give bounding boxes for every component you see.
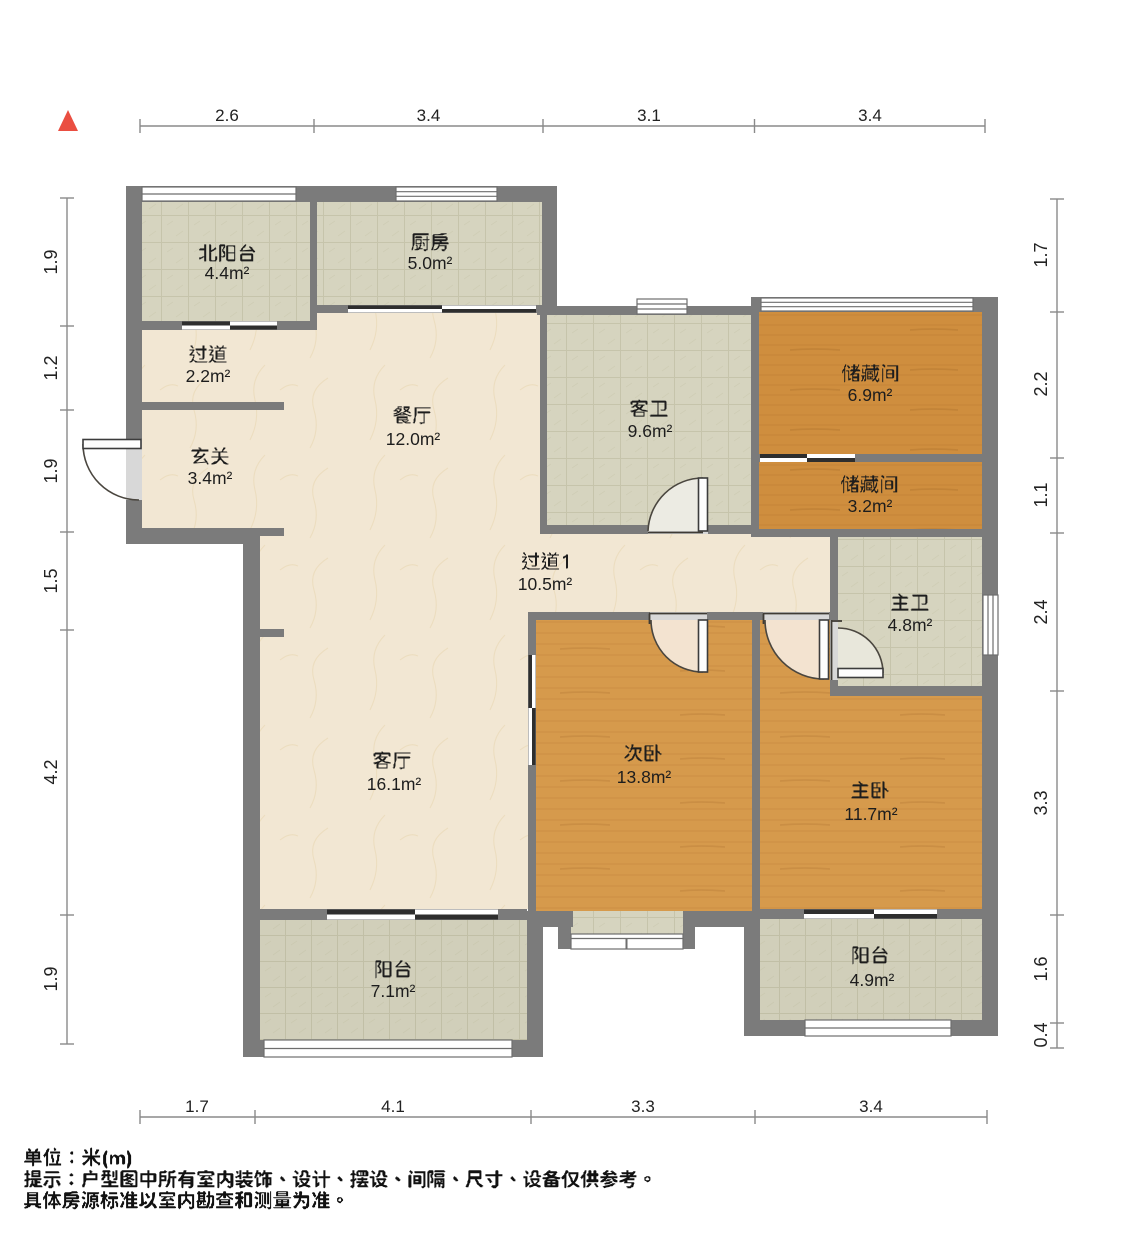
- svg-text:2.2m²: 2.2m²: [186, 366, 231, 386]
- svg-text:16.1m²: 16.1m²: [367, 774, 422, 794]
- svg-text:1.9: 1.9: [41, 249, 61, 274]
- svg-text:13.8m²: 13.8m²: [617, 767, 672, 787]
- svg-text:4.2: 4.2: [41, 759, 61, 784]
- svg-text:3.4: 3.4: [417, 106, 441, 125]
- svg-text:3.1: 3.1: [637, 106, 661, 125]
- svg-text:1.1: 1.1: [1031, 482, 1051, 507]
- svg-text:4.1: 4.1: [381, 1097, 405, 1116]
- svg-text:3.3: 3.3: [631, 1097, 655, 1116]
- svg-text:1.5: 1.5: [41, 568, 61, 593]
- svg-text:4.9m²: 4.9m²: [850, 970, 895, 990]
- svg-text:5.0m²: 5.0m²: [408, 253, 453, 273]
- svg-text:10.5m²: 10.5m²: [518, 574, 573, 594]
- svg-text:6.9m²: 6.9m²: [848, 385, 893, 405]
- svg-text:2.6: 2.6: [215, 106, 239, 125]
- svg-text:0.4: 0.4: [1031, 1022, 1051, 1047]
- svg-text:3.2m²: 3.2m²: [848, 496, 893, 516]
- svg-text:4.8m²: 4.8m²: [888, 615, 933, 635]
- svg-text:1.9: 1.9: [41, 458, 61, 483]
- svg-text:2.2: 2.2: [1031, 371, 1051, 396]
- svg-text:3.4m²: 3.4m²: [188, 468, 233, 488]
- svg-text:11.7m²: 11.7m²: [844, 804, 897, 824]
- svg-text:12.0m²: 12.0m²: [386, 429, 441, 449]
- svg-text:3.4: 3.4: [858, 106, 882, 125]
- svg-text:3.3: 3.3: [1031, 790, 1051, 815]
- svg-text:1.2: 1.2: [41, 355, 61, 380]
- svg-text:1.7: 1.7: [185, 1097, 209, 1116]
- svg-text:2.4: 2.4: [1031, 599, 1051, 624]
- svg-text:1.7: 1.7: [1031, 242, 1051, 267]
- svg-text:9.6m²: 9.6m²: [628, 421, 673, 441]
- svg-text:4.4m²: 4.4m²: [205, 263, 250, 283]
- svg-text:1.6: 1.6: [1031, 956, 1051, 981]
- svg-text:3.4: 3.4: [859, 1097, 883, 1116]
- svg-text:7.1m²: 7.1m²: [371, 981, 416, 1001]
- svg-text:1.9: 1.9: [41, 966, 61, 991]
